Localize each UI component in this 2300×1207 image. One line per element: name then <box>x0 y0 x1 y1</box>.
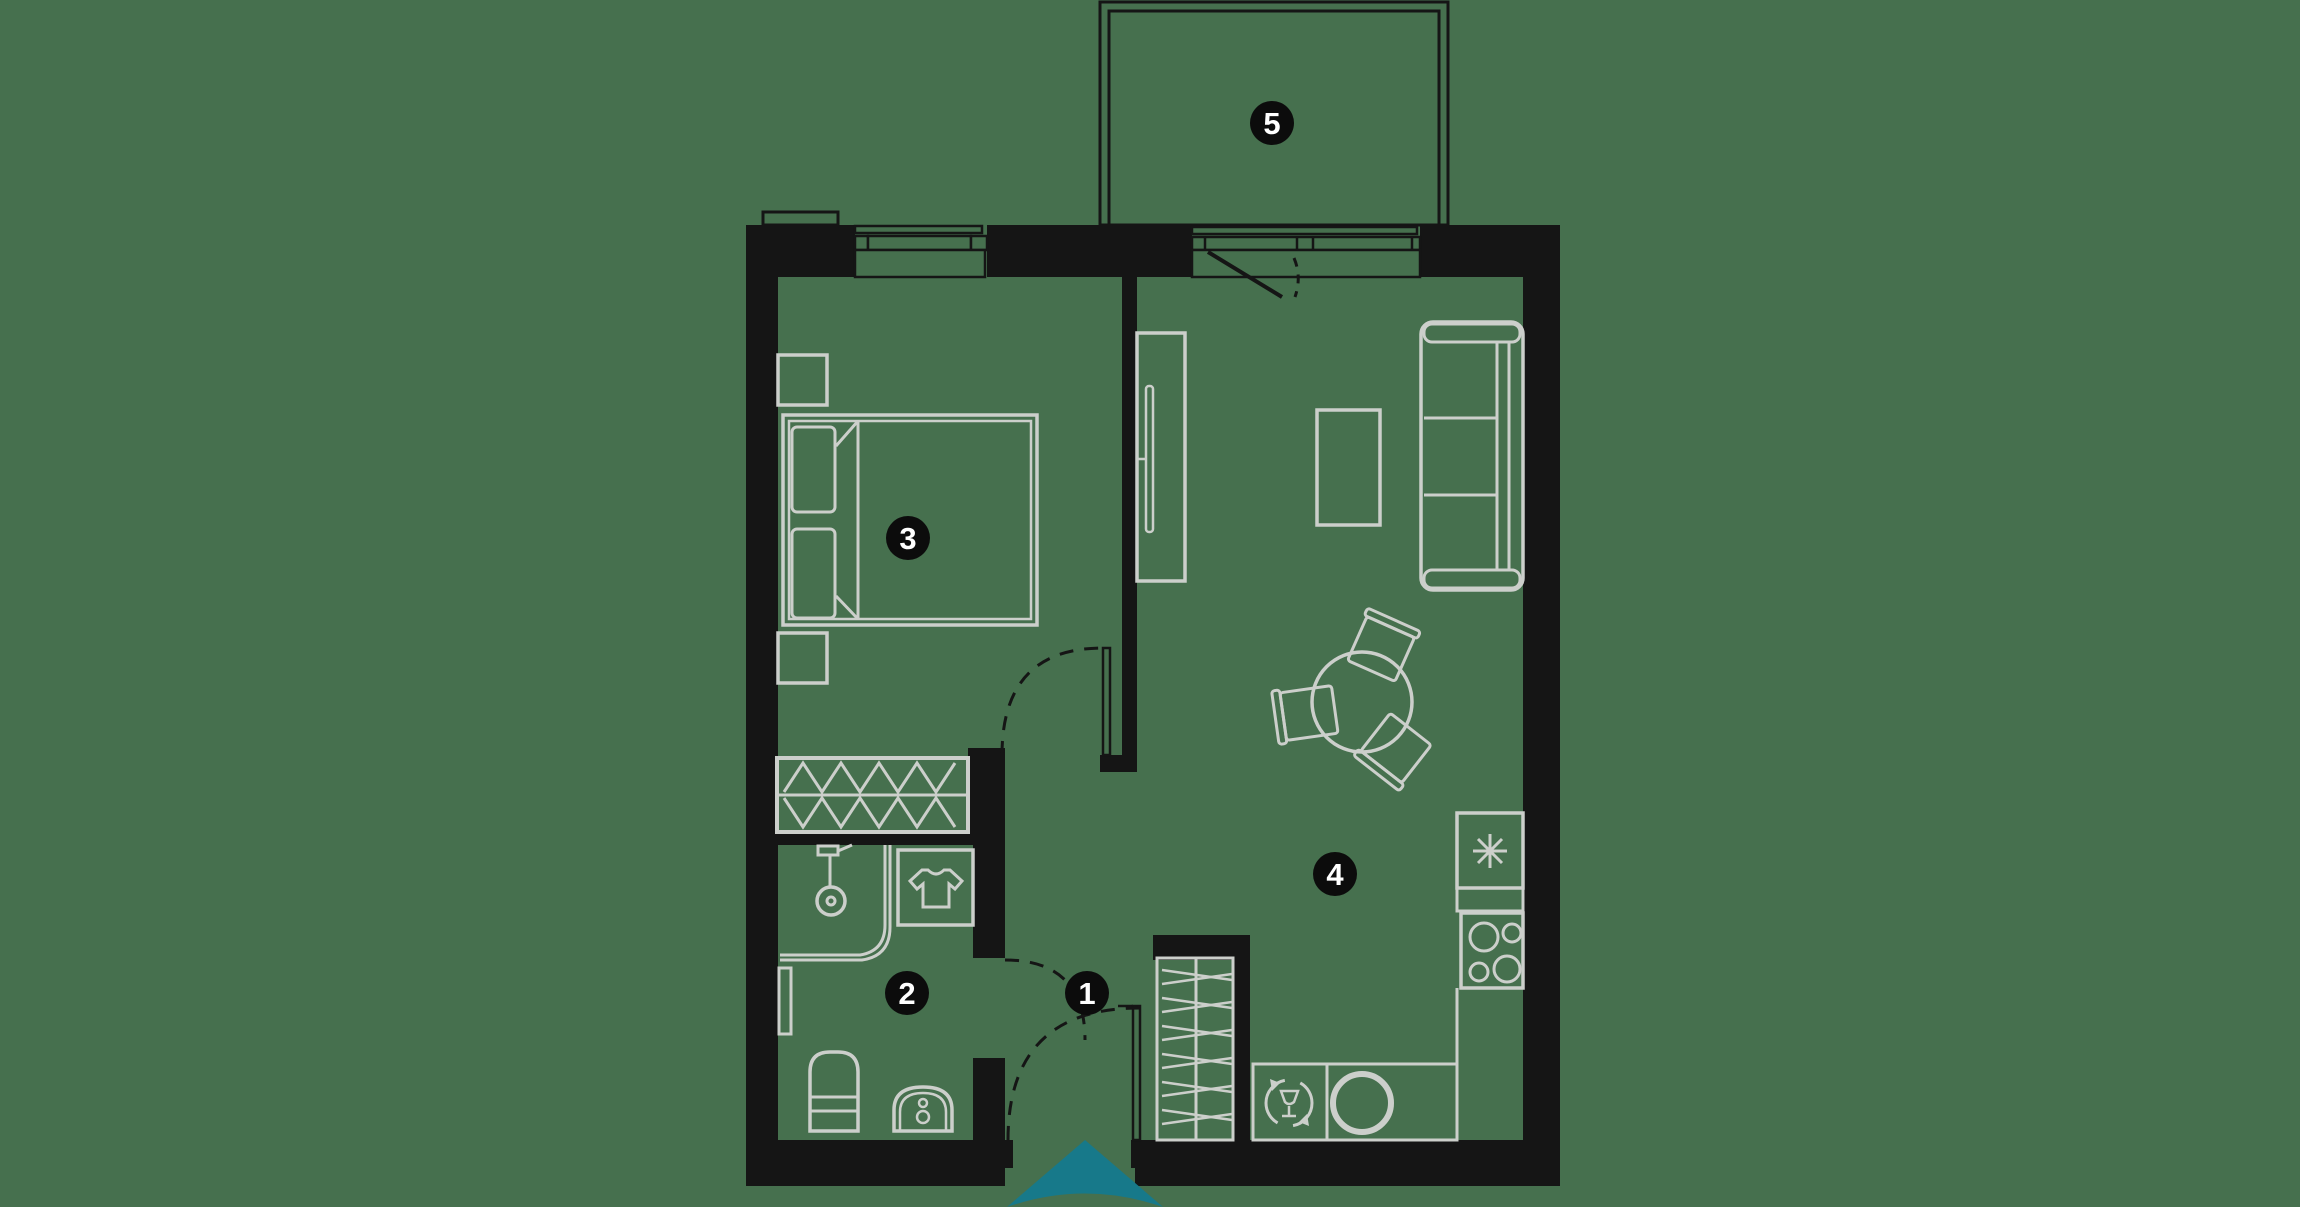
shower-icon <box>780 845 890 960</box>
wall-hall-wardrobe-right <box>1233 935 1250 1140</box>
balcony-door-sill-row <box>1192 237 1420 250</box>
hob-burners-icon <box>1461 913 1523 988</box>
tv-icon <box>1146 386 1153 532</box>
entrance-door-leaf <box>1133 1006 1140 1140</box>
wall-bathroom-east-lower <box>973 1058 1005 1140</box>
balcony-door-sill-outer <box>1192 227 1417 234</box>
window-pane-mid <box>868 236 971 250</box>
wall-right <box>1523 225 1560 1186</box>
floor-plan-svg: 1 2 3 4 5 <box>0 0 2300 1207</box>
entrance-jamb-right <box>1131 1140 1141 1168</box>
room-label-5: 5 <box>1250 101 1294 145</box>
walls <box>746 225 1560 1186</box>
svg-text:5: 5 <box>1263 106 1280 141</box>
svg-text:3: 3 <box>899 521 916 556</box>
blanket-fold-top <box>836 421 858 446</box>
wall-left <box>746 225 778 1186</box>
room-label-4: 4 <box>1313 852 1357 896</box>
wardrobe-hatch-icon <box>784 763 955 792</box>
entrance-door <box>1008 1006 1140 1140</box>
bedroom-door <box>1002 648 1110 755</box>
nightstand-top <box>778 355 827 405</box>
living-room-furniture <box>1137 322 1523 791</box>
window-pane-left <box>855 236 868 250</box>
room-label-2: 2 <box>885 971 929 1015</box>
window-ledge-icon <box>763 212 838 225</box>
entrance-jamb-left <box>1003 1140 1013 1168</box>
laundry-cabinet <box>898 850 973 925</box>
bathroom-fixtures <box>779 845 973 1131</box>
sofa-armrest-top <box>1424 324 1520 342</box>
window-pane-right <box>971 236 987 250</box>
floor-plan-canvas: 1 2 3 4 5 <box>0 0 2300 1207</box>
dishwasher-icon <box>1266 1079 1312 1126</box>
dining-chair <box>1345 608 1421 683</box>
svg-text:2: 2 <box>898 976 915 1011</box>
door-swing-icon <box>1002 648 1103 755</box>
room-label-1: 1 <box>1065 971 1109 1015</box>
dining-set <box>1272 608 1434 791</box>
sofa-armrest-bottom <box>1424 570 1520 588</box>
sofa <box>1421 322 1523 590</box>
bedroom-door-leaf <box>1103 648 1110 755</box>
svg-text:1: 1 <box>1078 976 1095 1011</box>
wardrobe-hatch-icon <box>784 798 955 827</box>
window-sill-outer <box>855 226 982 233</box>
towel-rail-icon <box>779 968 791 1034</box>
blanket-fold-bottom <box>836 596 858 619</box>
wall-bottom-right <box>1135 1140 1560 1186</box>
wall-bedroom-door-jamb <box>1100 755 1137 772</box>
wall-partition-bedroom-living <box>1122 277 1137 772</box>
svg-text:4: 4 <box>1326 857 1344 892</box>
room-label-3: 3 <box>886 516 930 560</box>
window-sill-inner <box>855 250 985 277</box>
pillow-top <box>792 427 835 512</box>
closet-wardrobe <box>777 758 968 832</box>
coffee-table <box>1317 410 1380 525</box>
door-swing-icon <box>1008 1008 1140 1140</box>
wall-bottom-left <box>746 1140 1005 1186</box>
sink-basin-icon <box>1333 1074 1391 1132</box>
asterisk-icon <box>1473 834 1507 868</box>
pillow-bottom <box>792 529 835 618</box>
dining-chair <box>1272 683 1339 745</box>
kitchen-counter-band <box>1457 888 1523 911</box>
hall-wardrobe <box>1157 958 1233 1140</box>
tshirt-icon <box>910 870 962 907</box>
washing-machine-icon <box>810 1052 858 1131</box>
toilet-icon <box>894 1087 952 1131</box>
wall-under-closet <box>746 833 1005 845</box>
kitchen <box>1253 813 1523 1140</box>
wall-bathroom-east-upper <box>973 845 1005 958</box>
balcony-door <box>1192 227 1420 297</box>
tv-unit <box>1137 333 1185 581</box>
nightstand-bottom <box>778 633 827 683</box>
wall-junction-block <box>968 748 1005 845</box>
wall-top-mid <box>987 225 1192 277</box>
